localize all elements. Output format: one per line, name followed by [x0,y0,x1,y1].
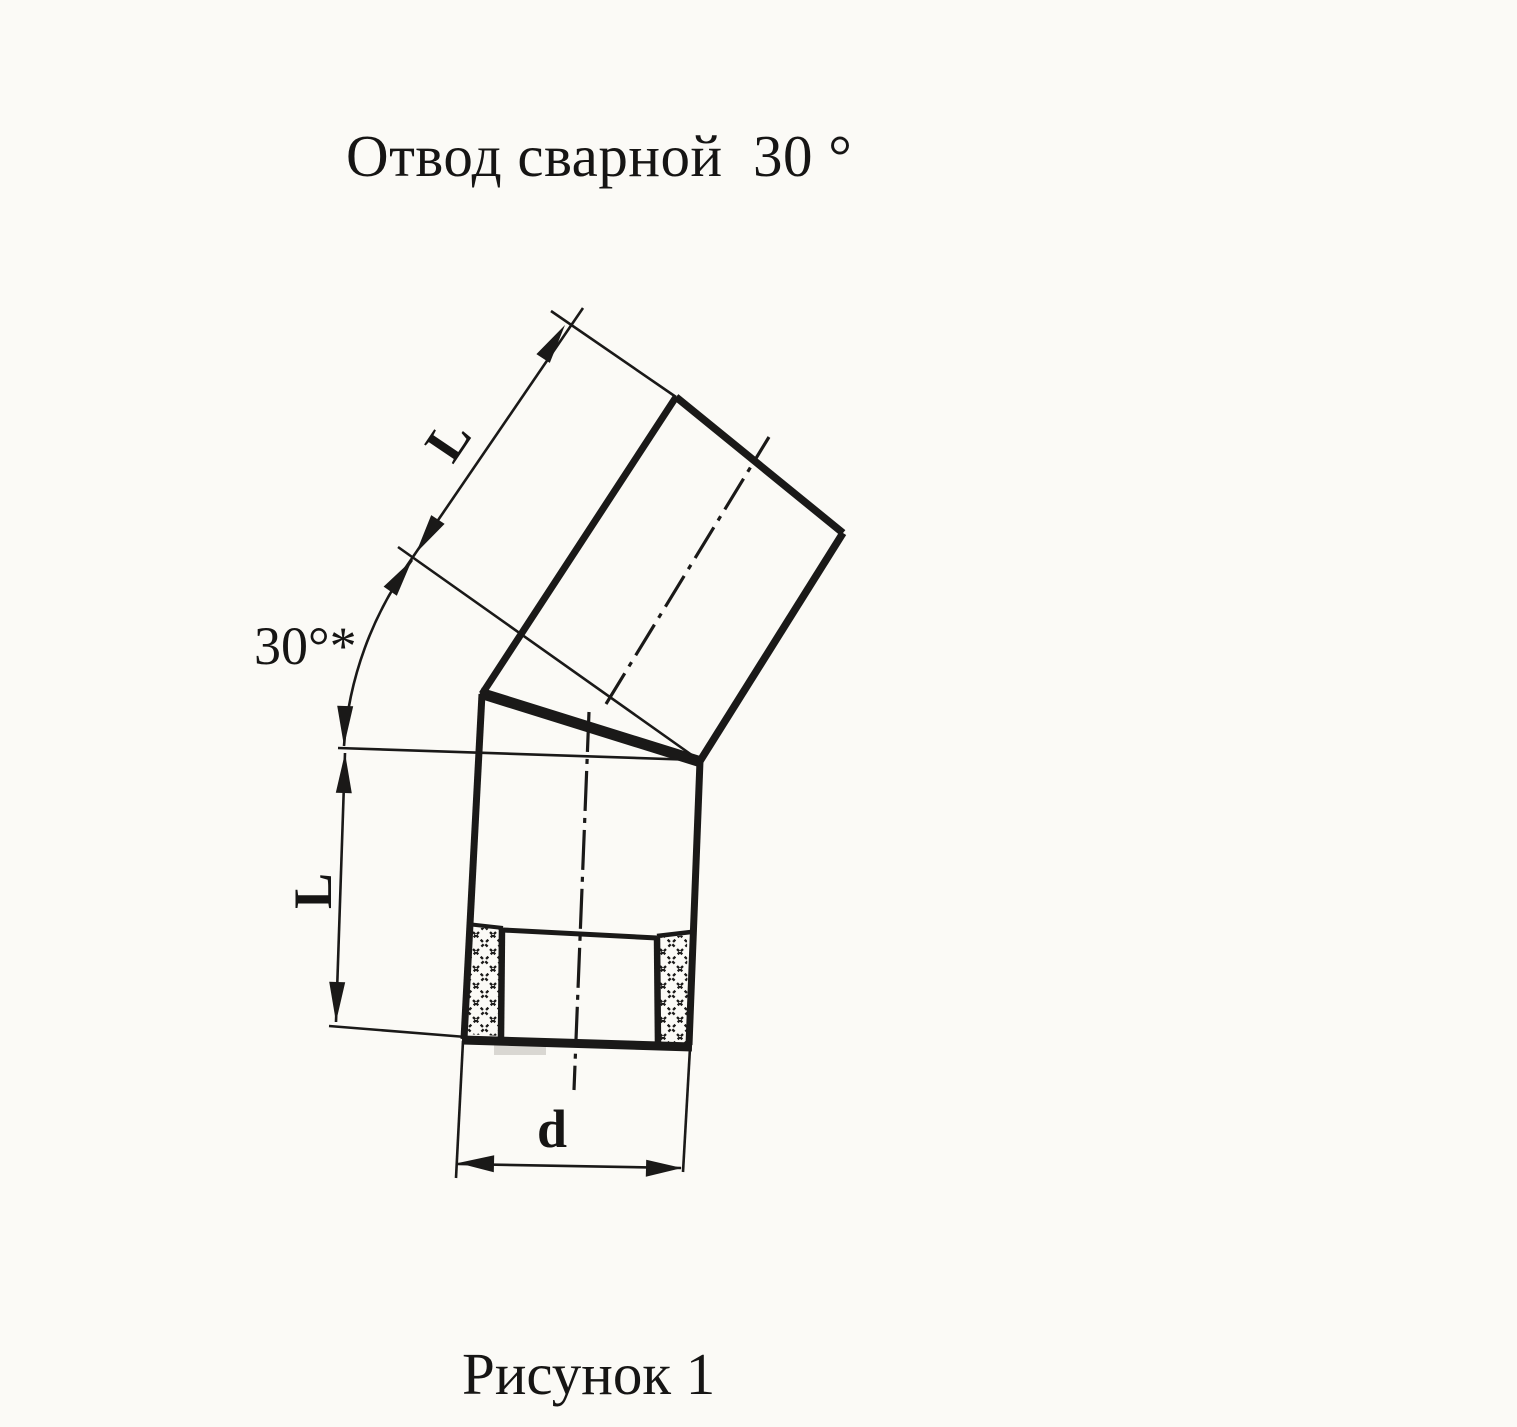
lower-length-label: L [283,873,343,909]
diameter-label: d [537,1099,567,1159]
weld-seam-line [480,693,701,762]
figure-caption: Рисунок 1 [462,1342,715,1407]
length-dimension-lower: L [283,753,466,1037]
upper-length-label: L [413,408,483,471]
wall-section-left [465,924,503,1037]
angle-label: 30°* [254,616,357,676]
centerline-lower-pipe [574,712,589,1090]
angle-dimension-arc: 30°* [254,560,697,760]
diameter-dimension: d [456,1041,690,1178]
elbow-drawing: L 30°* L [0,0,1517,1427]
centerline-upper-pipe [606,437,769,704]
length-dimension-upper: L [398,308,696,758]
wall-section-right [657,932,691,1045]
scanned-sheet: Отвод сварной 30 ° [0,0,1517,1427]
